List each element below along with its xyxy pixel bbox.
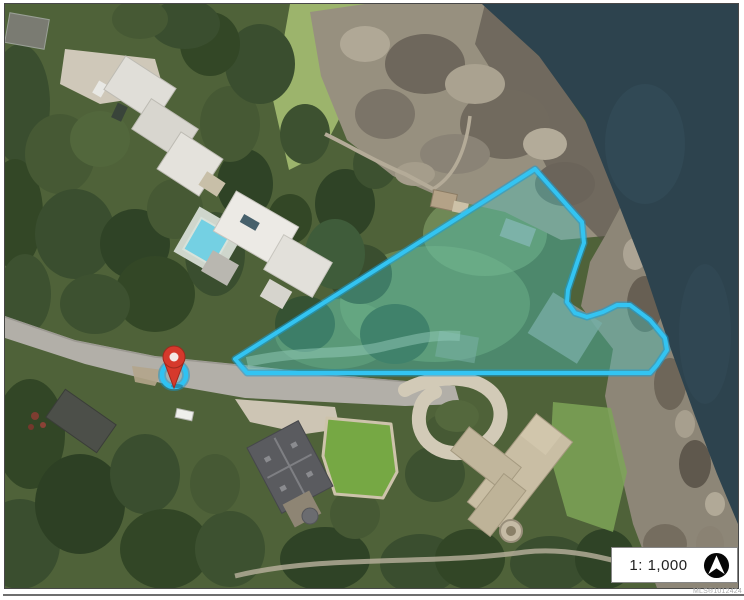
aerial-map-image: 1: 1,000 <box>4 3 739 589</box>
lawn <box>323 418 397 498</box>
section-divider <box>3 594 744 596</box>
scale-text: 1: 1,000 <box>612 557 703 574</box>
north-arrow-icon <box>703 552 730 579</box>
aerial-photo <box>5 4 738 588</box>
location-pin-icon <box>162 346 186 388</box>
listing-map-page: 1: 1,000 MLS®1012424 <box>0 0 744 600</box>
scale-indicator: 1: 1,000 <box>611 547 738 583</box>
building-roof <box>5 13 49 49</box>
